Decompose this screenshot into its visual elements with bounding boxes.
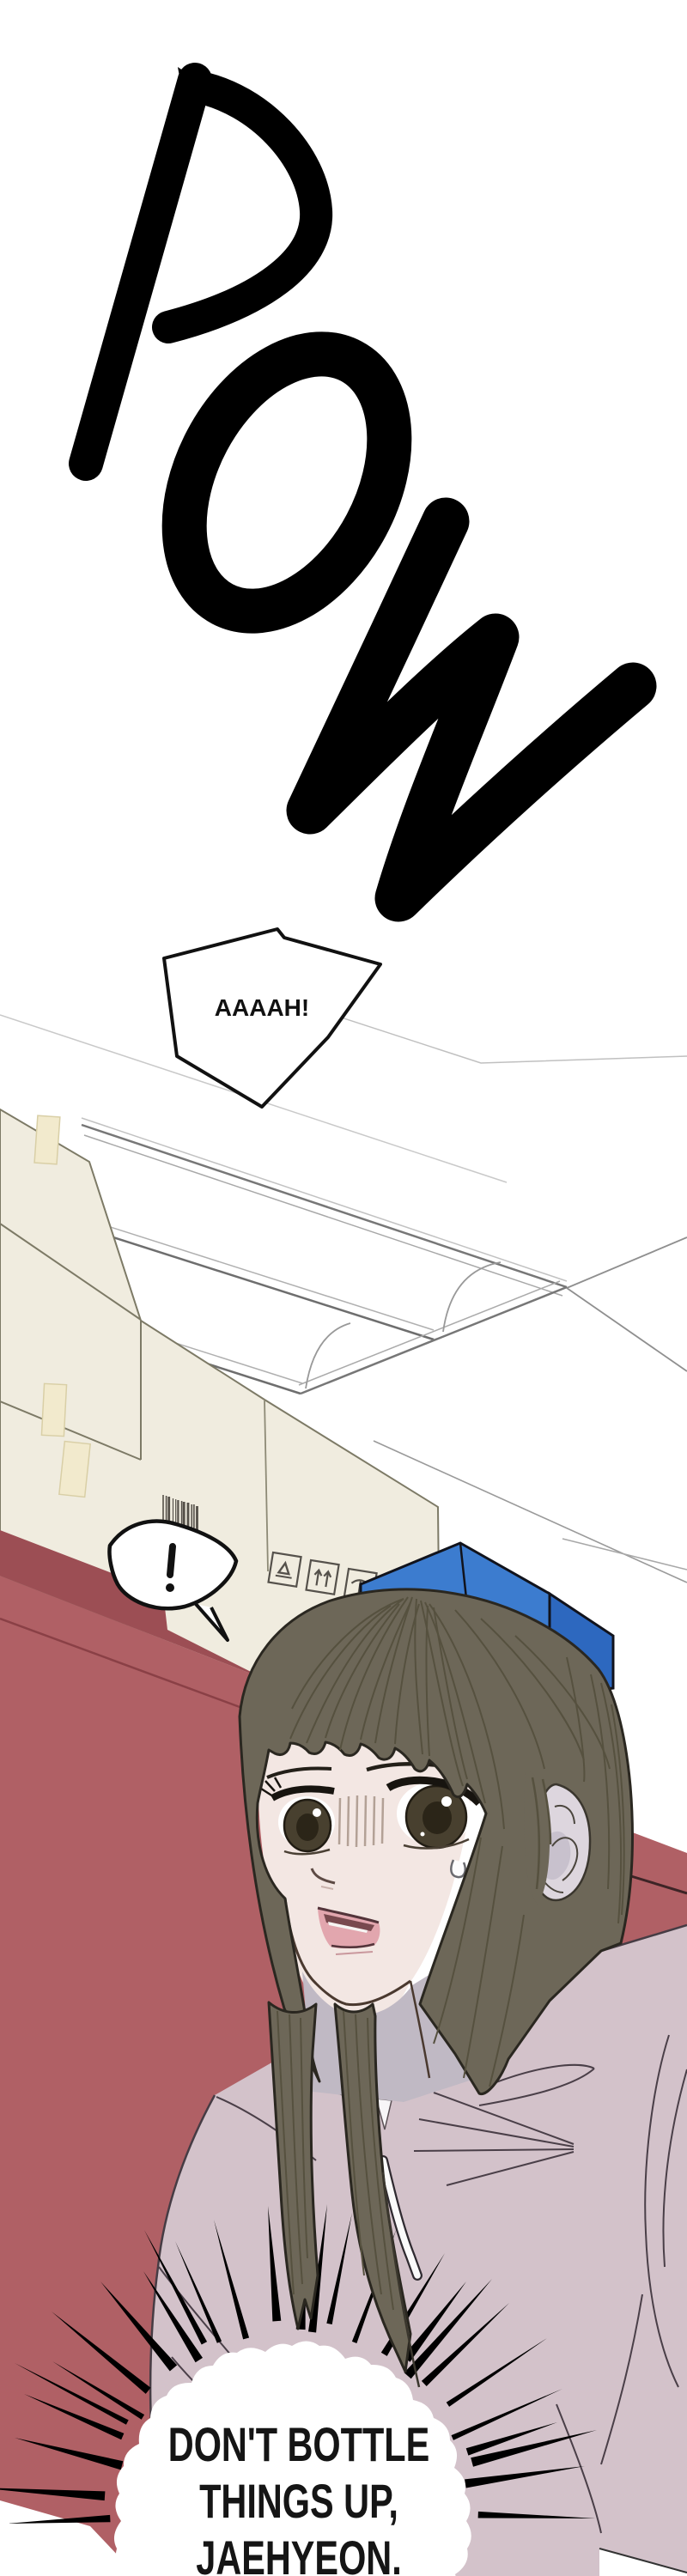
svg-text:AAAAH!: AAAAH! <box>215 994 309 1021</box>
svg-text:DON'T BOTTLE: DON'T BOTTLE <box>168 2418 429 2472</box>
svg-text:THINGS UP,: THINGS UP, <box>199 2475 398 2529</box>
svg-text:JAEHYEON.: JAEHYEON. <box>196 2531 401 2576</box>
